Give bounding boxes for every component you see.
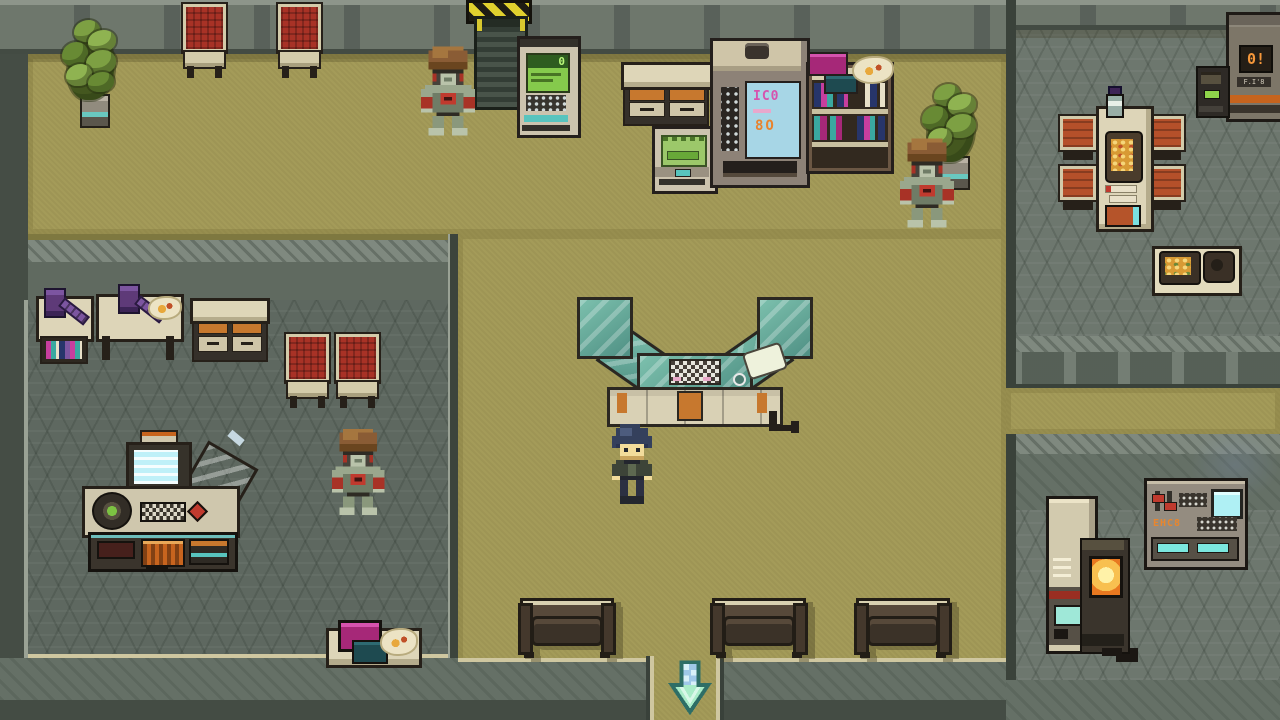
reception-desk[interactable] xyxy=(573,293,811,435)
atm-keypad[interactable] xyxy=(526,95,566,111)
monitor-screen xyxy=(134,450,178,484)
wall-south-hall xyxy=(458,662,1006,700)
desk-orange-accent xyxy=(617,393,627,413)
chair-leg xyxy=(310,66,317,78)
paper-item xyxy=(380,628,418,656)
door-marker xyxy=(520,19,525,31)
atm-screen-text: 0 xyxy=(528,55,568,68)
bench xyxy=(518,598,616,658)
dining-table[interactable] xyxy=(1096,106,1154,232)
wall-east-room-south-top xyxy=(1016,336,1280,352)
counter-drawer-cream xyxy=(629,102,665,117)
vending-screen-dash xyxy=(753,109,771,113)
terminal-kiosk[interactable] xyxy=(1196,66,1230,118)
atm-terminal[interactable]: 0 xyxy=(517,36,581,138)
dispenser-display: 0! xyxy=(1239,45,1273,73)
chair-leg xyxy=(290,396,297,408)
chair-back xyxy=(286,334,329,382)
console-keyboard[interactable] xyxy=(140,502,186,522)
tablet-item xyxy=(808,52,848,76)
robot-npc-east[interactable] xyxy=(896,138,958,228)
panel-keypad[interactable] xyxy=(1197,517,1237,531)
utensil xyxy=(1105,185,1137,193)
console-foot xyxy=(146,566,168,572)
vending-emblem xyxy=(745,43,769,59)
vending-buttons[interactable] xyxy=(721,87,739,151)
chair-cushion xyxy=(1060,116,1096,150)
pot-opening xyxy=(1211,259,1223,271)
paper-map-item xyxy=(852,56,894,84)
vending-screen: IC0 8O xyxy=(745,81,801,159)
bottle-body xyxy=(1106,94,1124,118)
shelf-board xyxy=(812,142,888,147)
bench xyxy=(854,598,952,658)
wall-edge xyxy=(1006,434,1016,720)
chair-base xyxy=(1151,200,1181,210)
lab-table-supplies xyxy=(96,294,184,366)
ticket-base xyxy=(659,179,705,185)
counter-drawer-cream xyxy=(669,102,705,117)
wall-west-room-top xyxy=(28,240,458,262)
locker-screen xyxy=(1054,605,1082,626)
dispenser-base xyxy=(1226,105,1280,113)
atm-screen-line xyxy=(531,79,553,82)
book-item xyxy=(824,74,858,94)
cooking-pot xyxy=(1203,251,1235,283)
robot-npc-north[interactable] xyxy=(417,46,479,136)
book-stack xyxy=(40,336,88,364)
table-leg xyxy=(166,336,174,360)
chair-back xyxy=(336,334,379,382)
cabinet-top xyxy=(190,298,270,324)
furnace-window xyxy=(1089,556,1123,598)
vending-screen-text-top: IC0 xyxy=(753,90,799,103)
desk-orange-accent xyxy=(757,393,767,413)
button-block[interactable] xyxy=(1179,493,1207,507)
dining-chair xyxy=(1060,116,1096,162)
cable xyxy=(1130,648,1138,662)
bench-leg xyxy=(600,652,610,658)
chair-back xyxy=(278,4,321,52)
panel-bottom-bar xyxy=(1151,537,1239,561)
bench-leg xyxy=(792,652,802,658)
dispenser-label: F.I'8 xyxy=(1237,77,1271,87)
bookshelf xyxy=(806,52,894,172)
console-orange-device xyxy=(141,539,185,567)
table-door xyxy=(1105,205,1141,227)
chair-leg xyxy=(340,396,347,408)
wall-south-east xyxy=(1006,680,1280,720)
panel-readout-text: EHC8 xyxy=(1153,519,1181,529)
pizza xyxy=(1165,257,1191,275)
waiting-chair xyxy=(286,334,329,409)
dispenser-machine[interactable]: 0! F.I'8 xyxy=(1226,12,1280,122)
desk-cable xyxy=(791,421,799,433)
wall-edge-light xyxy=(24,300,28,660)
bench-arm xyxy=(601,603,616,655)
plant-leaf xyxy=(948,94,976,116)
bench-seat xyxy=(867,616,939,646)
ticket-machine[interactable] xyxy=(652,126,718,194)
console-slot xyxy=(97,541,135,559)
table-leg xyxy=(102,336,110,360)
waiting-chair xyxy=(278,4,321,79)
potted-plant xyxy=(58,20,122,128)
kiosk-panel xyxy=(1201,72,1221,84)
atm-base xyxy=(522,125,570,131)
wall-edge xyxy=(1006,336,1016,388)
food-plate xyxy=(1105,131,1143,183)
bench-leg xyxy=(524,652,534,658)
furnace-base xyxy=(1082,634,1124,646)
player-character[interactable] xyxy=(608,424,656,508)
robot-npc-west[interactable] xyxy=(328,428,388,516)
atm-slot xyxy=(524,115,568,122)
bench-seat xyxy=(723,616,795,646)
plant-leaf xyxy=(88,30,116,52)
cyan-bar xyxy=(1157,543,1189,553)
dispenser-stripe xyxy=(1226,95,1280,103)
vending-screen-text-bottom: 8O xyxy=(755,119,799,133)
wall-east-room-west-edge xyxy=(1006,0,1016,336)
chair-base xyxy=(1063,200,1093,210)
counter-top xyxy=(621,62,713,90)
pizza xyxy=(1111,139,1133,171)
kiosk-light xyxy=(1204,90,1220,99)
dining-chair xyxy=(1060,166,1096,212)
paper-item xyxy=(148,296,182,320)
cabinet-drawer-cream xyxy=(232,336,262,352)
bench-seat xyxy=(531,616,603,646)
dispenser-bottle xyxy=(1104,86,1122,116)
bench xyxy=(710,598,808,658)
radar-dial xyxy=(92,492,132,530)
atm-screen-line xyxy=(531,73,561,76)
vending-slot[interactable] xyxy=(723,161,797,177)
pizza-tray xyxy=(1159,251,1201,285)
storage-counter xyxy=(621,62,713,126)
ticket-slot xyxy=(675,169,691,177)
side-table xyxy=(326,622,422,672)
console-drawer xyxy=(189,539,229,565)
kiosk-base xyxy=(1199,106,1223,112)
chair-back xyxy=(183,4,226,52)
ticket-screen-button xyxy=(667,151,699,160)
wall-west-room-face xyxy=(28,262,458,300)
bench-arm xyxy=(793,603,808,655)
book-row xyxy=(865,83,885,107)
locker-vents xyxy=(1053,557,1071,577)
computer-console[interactable] xyxy=(82,430,238,572)
keyboard-key-pink xyxy=(703,377,711,381)
bench-leg xyxy=(860,652,870,658)
wall-divider xyxy=(448,234,458,664)
chair-leg xyxy=(368,396,375,408)
plant-leaf xyxy=(62,42,88,66)
desk-keyboard[interactable] xyxy=(669,359,721,385)
drawer-cabinet xyxy=(190,298,270,362)
chair-leg xyxy=(318,396,325,408)
ticket-tray xyxy=(655,167,709,177)
lab-table-books xyxy=(36,296,94,366)
utensil xyxy=(1109,195,1137,203)
wall-east-room-south-panels xyxy=(1016,352,1280,384)
furnace-top xyxy=(1082,540,1124,550)
bench-leg xyxy=(936,652,946,658)
map-border-south xyxy=(0,700,1006,720)
desk-dial xyxy=(733,373,746,386)
waiting-chair xyxy=(336,334,379,409)
desk-orange-panel xyxy=(677,391,703,421)
locker-slot xyxy=(1054,629,1068,639)
chair-base xyxy=(1063,150,1093,160)
bench-arm xyxy=(937,603,952,655)
bench-leg xyxy=(716,652,726,658)
panel-screen xyxy=(1211,489,1243,519)
book-row xyxy=(857,116,885,140)
wall-control-panel[interactable]: EHC8 xyxy=(1144,478,1248,570)
waiting-chair xyxy=(183,4,226,79)
door-marker xyxy=(477,19,482,31)
cabinet-drawer-cream xyxy=(198,336,228,352)
chair-base xyxy=(1151,150,1181,160)
chair-leg xyxy=(215,66,222,78)
furnace[interactable] xyxy=(1080,538,1130,654)
chair-cushion xyxy=(1060,166,1096,200)
keyboard-key-pink xyxy=(673,377,681,381)
book-row xyxy=(814,116,842,140)
atm-screen: 0 xyxy=(526,53,570,93)
lever-knob[interactable] xyxy=(1164,502,1177,511)
vending-machine[interactable]: IC0 8O xyxy=(710,38,810,188)
cyan-bar xyxy=(1197,543,1229,553)
exit-arrow-icon[interactable] xyxy=(668,660,712,716)
floor-east-corridor xyxy=(1006,388,1280,434)
chair-leg xyxy=(282,66,289,78)
plant-leaf xyxy=(88,72,114,92)
ticket-screen xyxy=(661,135,707,167)
desk-glass-wing-left xyxy=(577,297,633,359)
plant-leaf xyxy=(922,106,948,130)
food-tray-table xyxy=(1152,246,1242,296)
chair-leg xyxy=(187,66,194,78)
game-viewport: 0 IC0 8O xyxy=(0,0,1280,720)
shelf-board xyxy=(812,109,888,114)
